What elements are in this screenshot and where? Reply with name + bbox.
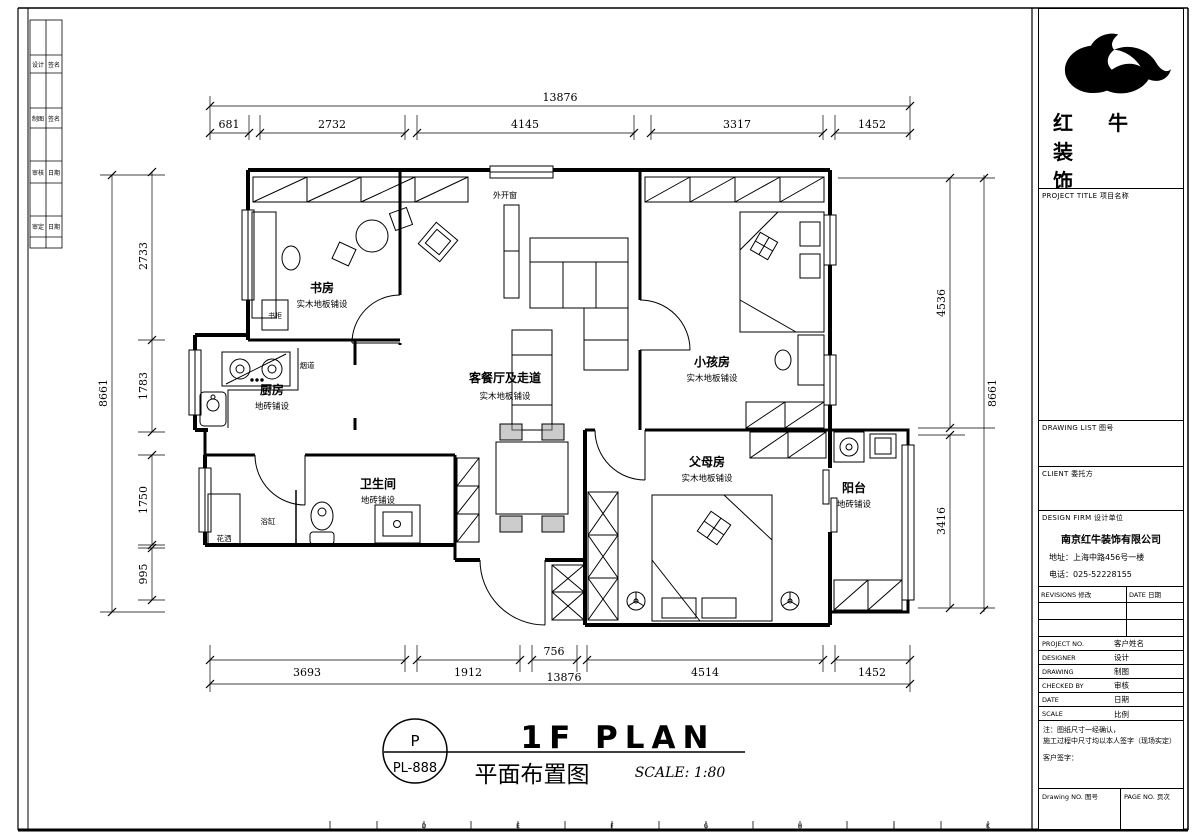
door-arcs xyxy=(255,295,690,625)
notes-line2: 施工过程中尺寸均以本人签字（现场实定） xyxy=(1043,736,1179,747)
row-value: 制图 xyxy=(1114,666,1129,677)
finish-parents: 实木地板铺设 xyxy=(681,473,733,484)
drawing-area: 设计 签名 制图 签名 审核 日期 审定 日期 xyxy=(0,0,1200,840)
annotation-flue: 烟道 xyxy=(300,360,315,370)
bubble-number: PL-888 xyxy=(393,761,437,776)
fan-icon xyxy=(627,592,645,610)
hall-storage-column xyxy=(552,565,584,620)
grid-letter: E xyxy=(516,823,520,830)
company-phone: 电话：025-52228155 xyxy=(1049,569,1183,580)
finish-kitchen: 地砖铺设 xyxy=(255,401,290,412)
dimension-bottom: 3693 1912 756 4514 1452 13876 xyxy=(206,645,914,692)
grid-letter: D xyxy=(422,823,427,830)
client-label: CLIENT 委托方 xyxy=(1039,467,1183,479)
sig-cell: 签名 xyxy=(48,61,60,69)
row-label: DRAWING xyxy=(1039,668,1114,676)
dim-top-total: 13876 xyxy=(543,91,578,104)
dim-top-seg: 4145 xyxy=(511,118,539,131)
dim-bottom-seg: 3693 xyxy=(293,666,321,679)
kids-bed xyxy=(740,212,824,332)
sig-cell: 制图 xyxy=(32,115,44,123)
bathroom-cabinet xyxy=(457,458,479,542)
parents-room-door-arc-icon xyxy=(595,430,645,480)
grid-letter: F xyxy=(610,823,614,830)
kids-bottom-cabinet xyxy=(746,402,824,428)
dim-right-seg: 4536 xyxy=(935,289,948,317)
revision-date-label: DATE 日期 xyxy=(1127,587,1183,602)
dimension-left: 8661 2733 1783 1750 995 xyxy=(97,168,165,616)
bubble-letter: P xyxy=(410,732,419,750)
fan-icon xyxy=(781,592,799,610)
toilet-icon xyxy=(310,502,334,544)
parents-top-cabinet xyxy=(750,432,826,458)
sig-cell: 签名 xyxy=(48,115,60,123)
grid-letter: G xyxy=(704,823,709,830)
drawing-no-label: Drawing NO. 图号 xyxy=(1039,789,1121,829)
plan-scale: SCALE: 1:80 xyxy=(635,765,726,781)
project-title-box: PROJECT TITLE 项目名称 xyxy=(1038,188,1184,421)
client-box: CLIENT 委托方 xyxy=(1038,466,1184,511)
grid-letter: H xyxy=(798,823,803,830)
dim-left-seg: 995 xyxy=(137,564,150,585)
shoe-cabinet xyxy=(504,205,519,298)
annotation-bathtub: 浴缸 xyxy=(261,516,276,526)
kids-desk xyxy=(775,335,824,385)
entry-window-icon xyxy=(490,166,553,178)
signature-strip: 设计 签名 制图 签名 审核 日期 审定 日期 xyxy=(30,20,62,248)
room-label-kids: 小孩房 xyxy=(694,354,730,369)
finish-kids: 实木地板铺设 xyxy=(686,373,738,384)
revisions-box: REVISIONS 修改 DATE 日期 xyxy=(1038,586,1184,637)
washbasin-icon xyxy=(375,505,420,543)
cabinets xyxy=(253,177,902,620)
balcony-window-icon xyxy=(902,445,914,600)
dim-right-seg: 3416 xyxy=(935,507,948,535)
info-row: CHECKED BY 审核 xyxy=(1039,679,1183,693)
row-value: 设计 xyxy=(1114,652,1129,663)
balcony-rail xyxy=(834,580,902,610)
room-label-kitchen: 厨房 xyxy=(260,382,284,397)
logo-line1: 红 牛 装 xyxy=(1053,107,1183,165)
bathroom-door-arc-icon xyxy=(255,455,305,505)
kids-room-door-arc-icon xyxy=(640,300,690,350)
parents-bed xyxy=(652,495,772,621)
sig-cell: 日期 xyxy=(48,223,60,231)
revision-row xyxy=(1039,603,1183,620)
stove-icon xyxy=(222,352,290,386)
room-label-study: 书房 xyxy=(310,280,334,295)
info-row: PROJECT NO. 客户姓名 xyxy=(1039,637,1183,651)
design-firm-box: DESIGN FIRM 设计单位 南京红牛装饰有限公司 地址：上海中路456号一… xyxy=(1038,510,1184,587)
dim-top-seg: 3317 xyxy=(723,118,751,131)
dim-left-seg: 1750 xyxy=(137,486,150,514)
sofa xyxy=(530,238,628,370)
room-label-living: 客餐厅及走道 xyxy=(468,370,541,385)
sig-cell: 审定 xyxy=(32,223,44,231)
dim-left-seg: 2733 xyxy=(137,242,150,270)
balcony-slider-icon xyxy=(823,470,837,532)
row-label: PROJECT NO. xyxy=(1039,640,1114,648)
revisions-label: REVISIONS 修改 xyxy=(1039,587,1127,602)
finish-study: 实木地板铺设 xyxy=(296,299,348,310)
info-rows: PROJECT NO. 客户姓名 DESIGNER 设计 DRAWING 制图 … xyxy=(1038,636,1184,721)
notes-box: 注：图纸尺寸一经确认， 施工过程中尺寸均以本人签字（现场实定） 客户签字： xyxy=(1038,720,1184,789)
dim-bottom-seg: 1452 xyxy=(858,666,886,679)
annotation-bookcase: 书柜 xyxy=(268,311,282,320)
row-label: DATE xyxy=(1039,696,1114,704)
plan-title-cn: 平面布置图 xyxy=(475,762,590,788)
logo-bird-icon xyxy=(1051,23,1171,107)
room-labels: 书房 厨房 卫生间 客餐厅及走道 小孩房 父母房 阳台 xyxy=(260,280,866,495)
logo-section: 红 牛 装 饰 xyxy=(1038,8,1184,189)
row-value: 比例 xyxy=(1114,709,1129,720)
dim-right-total: 8661 xyxy=(986,379,999,407)
company-name: 南京红牛装饰有限公司 xyxy=(1039,531,1183,546)
row-value: 日期 xyxy=(1114,694,1129,705)
sink-icon xyxy=(200,392,226,426)
dim-left-seg: 1783 xyxy=(137,372,150,400)
annotation-shower: 花洒 xyxy=(217,533,232,543)
room-label-balcony: 阳台 xyxy=(842,480,866,495)
design-firm-label: DESIGN FIRM 设计单位 xyxy=(1039,511,1183,523)
finish-balcony: 地砖铺设 xyxy=(837,499,872,510)
dimension-top: 13876 681 2732 4145 3317 1452 xyxy=(206,91,914,140)
drawing-list-label: DRAWING LIST 图号 xyxy=(1039,421,1183,433)
balcony-basin-icon xyxy=(870,434,896,458)
dim-left-total: 8661 xyxy=(97,379,110,407)
dining-table xyxy=(496,424,568,532)
info-row: SCALE 比例 xyxy=(1039,707,1183,721)
client-signature-label: 客户签字： xyxy=(1043,753,1179,764)
dim-top-seg: 2732 xyxy=(318,118,346,131)
title-block: 红 牛 装 饰 PROJECT TITLE 项目名称 DRAWING LIST … xyxy=(1038,8,1184,830)
grid-letter: J xyxy=(892,823,895,830)
kids-wardrobe xyxy=(645,177,824,202)
entry-door-arc-icon xyxy=(480,560,545,625)
washing-machine-icon xyxy=(834,432,864,462)
row-label: CHECKED BY xyxy=(1039,682,1114,690)
dim-bottom-seg: 4514 xyxy=(691,666,719,679)
project-title-label: PROJECT TITLE 项目名称 xyxy=(1039,189,1183,201)
finish-living: 实木地板铺设 xyxy=(479,391,531,402)
dim-top-seg: 1452 xyxy=(858,118,886,131)
room-label-parents: 父母房 xyxy=(688,454,725,469)
revision-row xyxy=(1039,620,1183,636)
room-finishes: 实木地板铺设 地砖铺设 地砖铺设 实木地板铺设 实木地板铺设 实木地板铺设 地砖… xyxy=(255,299,872,510)
info-row: DATE 日期 xyxy=(1039,693,1183,707)
finish-bathroom: 地砖铺设 xyxy=(361,495,396,506)
floorplan-sheet: { "logo": {"line1": "红 牛 装", "line2": "饰… xyxy=(0,0,1200,840)
dim-bottom-seg: 756 xyxy=(544,645,565,658)
bathroom-window-icon xyxy=(199,468,211,532)
dim-bottom-seg: 1912 xyxy=(454,666,482,679)
row-value: 客户姓名 xyxy=(1114,638,1144,649)
sig-cell: 审核 xyxy=(32,169,44,177)
row-value: 审核 xyxy=(1114,680,1129,691)
study-door-arc-icon xyxy=(352,295,400,343)
kitchen-window-icon xyxy=(189,350,201,415)
dim-top-seg: 681 xyxy=(219,118,240,131)
sig-cell: 设计 xyxy=(32,61,44,69)
info-row: DRAWING 制图 xyxy=(1039,665,1183,679)
parents-wardrobe xyxy=(588,492,618,620)
study-wardrobe xyxy=(253,177,468,202)
dimension-right: 8661 4536 3416 xyxy=(838,174,999,614)
page-no-label: PAGE NO. 页次 xyxy=(1121,789,1183,829)
notes-line1: 注：图纸尺寸一经确认， xyxy=(1043,725,1179,736)
armchair xyxy=(418,222,457,261)
room-label-bathroom: 卫生间 xyxy=(360,476,396,491)
company-address: 地址：上海中路456号一楼 xyxy=(1049,552,1183,563)
company-logo-text: 红 牛 装 饰 xyxy=(1039,107,1183,194)
drawing-list-box: DRAWING LIST 图号 xyxy=(1038,420,1184,467)
drawing-number-box: Drawing NO. 图号 PAGE NO. 页次 xyxy=(1038,788,1184,830)
sheet-title: P PL-888 1F PLAN 平面布置图 SCALE: 1:80 xyxy=(383,719,745,788)
info-row: DESIGNER 设计 xyxy=(1039,651,1183,665)
plan-title-en: 1F PLAN xyxy=(521,720,716,756)
study-desk xyxy=(252,212,300,318)
dim-bottom-total: 13876 xyxy=(547,671,582,684)
annotation-window: 外开窗 xyxy=(493,190,517,200)
sig-cell: 日期 xyxy=(48,169,60,177)
row-label: DESIGNER xyxy=(1039,654,1114,662)
row-label: SCALE xyxy=(1039,710,1114,718)
